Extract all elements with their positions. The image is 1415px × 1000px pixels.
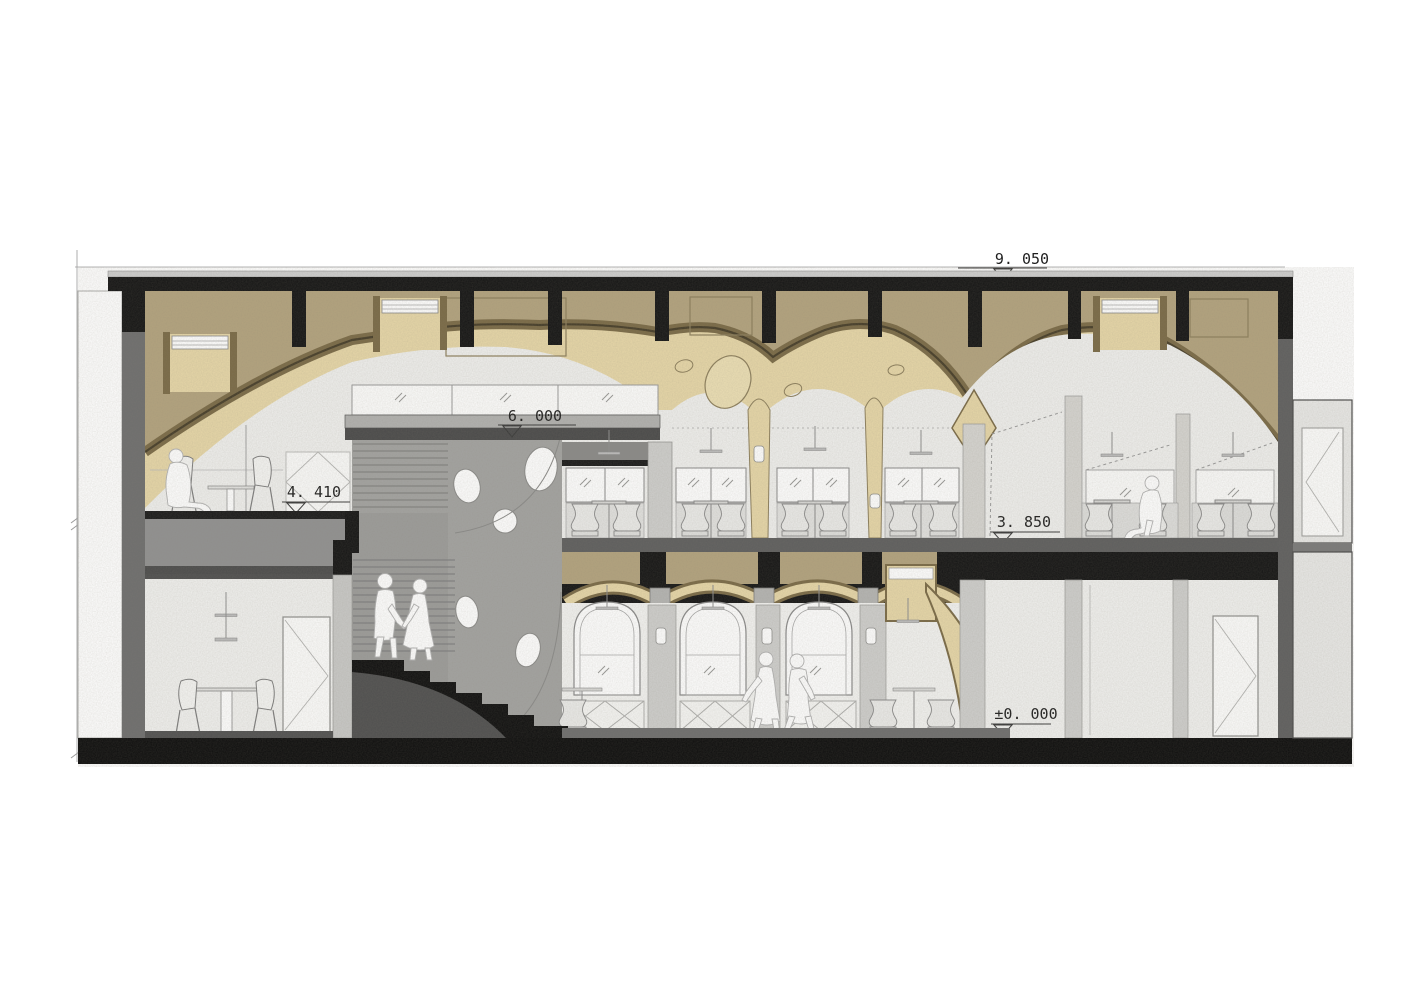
stool — [869, 700, 897, 732]
wall-slot — [870, 494, 880, 508]
door-right-room — [1213, 616, 1258, 736]
booth-stool — [613, 504, 641, 536]
building-section-svg: 9. 050 — [0, 0, 1415, 1000]
wall-slot — [762, 628, 772, 644]
skylight-right — [1093, 296, 1167, 352]
skylight-glass — [1102, 300, 1158, 313]
glass-balustrade — [352, 385, 658, 415]
vault-leg — [748, 399, 770, 538]
skylight-center — [373, 296, 447, 352]
booth-stool — [681, 504, 709, 536]
booth-stool — [781, 504, 809, 536]
pier — [1065, 396, 1082, 538]
elevation-label-mezzanine: 6. 000 — [508, 407, 562, 425]
annex-door — [1302, 428, 1343, 536]
wall-slot — [754, 446, 764, 462]
annex-band — [1293, 543, 1352, 552]
mezzanine: 6. 000 — [345, 385, 660, 440]
table — [185, 688, 268, 691]
booth-stool — [1197, 504, 1225, 536]
pier — [333, 575, 352, 738]
wall-slot — [866, 628, 876, 644]
elevation-label-upper-left: 4. 410 — [287, 483, 341, 501]
table — [208, 486, 254, 489]
elevation-label-restaurant: 3. 850 — [997, 513, 1051, 531]
booth-stool — [819, 504, 847, 536]
skylight-glass — [382, 300, 438, 313]
elevation-label-roof: 9. 050 — [995, 250, 1049, 268]
roof-finish — [108, 271, 1293, 277]
right-wall — [1278, 339, 1293, 738]
left-wall — [122, 332, 145, 738]
section-drawing-page: 9. 050 — [0, 0, 1415, 1000]
right-annex — [1293, 400, 1352, 738]
left-outer-wall — [78, 291, 122, 738]
skylight-left — [163, 332, 237, 394]
annex-lower-block — [1293, 552, 1352, 738]
left-wall-top — [122, 291, 145, 332]
pier — [648, 605, 676, 738]
left-room-floor-finish — [145, 731, 333, 738]
restaurant-floor-finish — [562, 728, 1010, 738]
ground-right-rooms: ±0. 000 — [960, 580, 1278, 738]
pier — [1065, 580, 1082, 738]
stool — [927, 700, 955, 732]
booth-stool — [1085, 504, 1113, 536]
elevation-label-ground: ±0. 000 — [994, 705, 1057, 723]
booth-stool — [717, 504, 745, 536]
door-lower-left — [283, 617, 330, 733]
booth-stool — [571, 504, 599, 536]
upper-dining-floor-slab — [562, 538, 1293, 552]
pier — [1173, 580, 1188, 738]
pier — [960, 580, 985, 738]
pier — [963, 424, 985, 538]
base-slab — [78, 738, 1352, 764]
roof-slab — [108, 277, 1293, 291]
right-wall-top — [1278, 291, 1293, 339]
booth-stool — [1247, 504, 1275, 536]
booth-stool — [929, 504, 957, 536]
pier — [648, 442, 672, 538]
arched-windows — [574, 602, 852, 695]
booth-stool — [889, 504, 917, 536]
skylight-glass — [172, 336, 228, 349]
wall-slot — [656, 628, 666, 644]
